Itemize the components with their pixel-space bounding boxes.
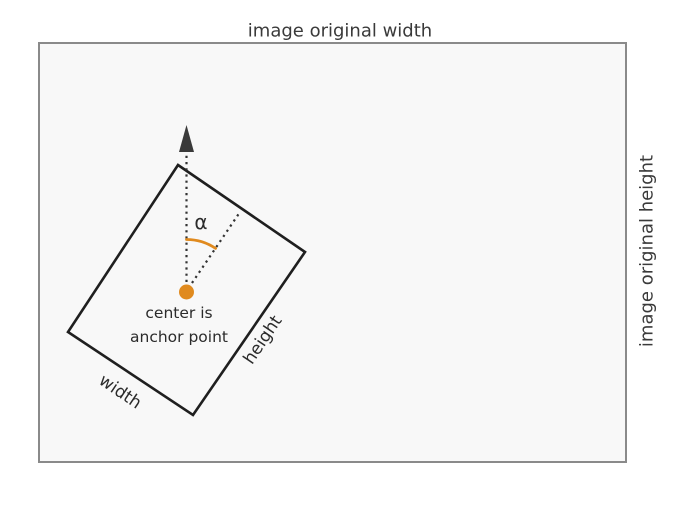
alpha-angle-label: α: [194, 210, 207, 234]
anchor-point-dot: [179, 285, 194, 300]
image-original-width-label: image original width: [248, 21, 432, 42]
anchor-caption: center is anchor point: [130, 301, 228, 349]
image-original-height-label: image original height: [637, 155, 658, 347]
angle-arc: [187, 239, 216, 248]
anchor-caption-line1: center is: [130, 301, 228, 325]
anchor-caption-line2: anchor point: [130, 325, 228, 349]
up-arrow-icon: [179, 125, 194, 152]
diagram-canvas: image original width image original heig…: [0, 0, 674, 521]
diagram-figure: [0, 0, 674, 521]
